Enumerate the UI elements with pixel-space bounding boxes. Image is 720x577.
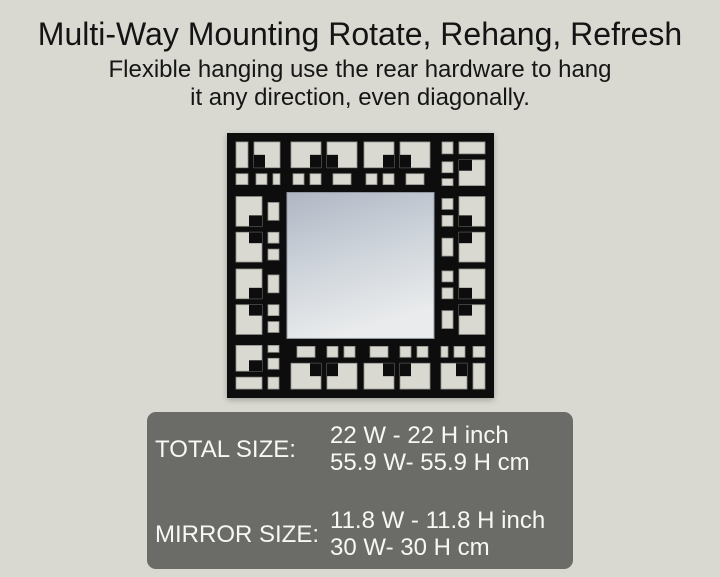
subtitle-line-1: Flexible hanging use the rear hardware t… [0,56,720,84]
total-size-inch: 22 W - 22 H inch [330,422,530,449]
table-row-total-size: TOTAL SIZE: 22 W - 22 H inch 55.9 W- 55.… [155,422,563,476]
total-size-label: TOTAL SIZE: [155,436,330,463]
header: Multi-Way Mounting Rotate, Rehang, Refre… [0,0,720,112]
fretwork-mirror-illustration [227,133,494,398]
mirror-size-cm: 30 W- 30 H cm [330,534,545,561]
size-table: TOTAL SIZE: 22 W - 22 H inch 55.9 W- 55.… [147,412,573,569]
total-size-cm: 55.9 W- 55.9 H cm [330,449,530,476]
product-infographic: Multi-Way Mounting Rotate, Rehang, Refre… [0,0,720,577]
mirror-size-inch: 11.8 W - 11.8 H inch [330,507,545,534]
subtitle-line-2: it any direction, even diagonally. [0,84,720,112]
mirror-graphic [227,133,494,398]
mirror-size-values: 11.8 W - 11.8 H inch 30 W- 30 H cm [330,507,545,561]
page-title: Multi-Way Mounting Rotate, Rehang, Refre… [0,15,720,53]
mirror-glass [287,193,434,339]
total-size-values: 22 W - 22 H inch 55.9 W- 55.9 H cm [330,422,530,476]
table-row-mirror-size: MIRROR SIZE: 11.8 W - 11.8 H inch 30 W- … [155,507,563,561]
mirror-size-label: MIRROR SIZE: [155,521,330,548]
page-subtitle: Flexible hanging use the rear hardware t… [0,56,720,112]
